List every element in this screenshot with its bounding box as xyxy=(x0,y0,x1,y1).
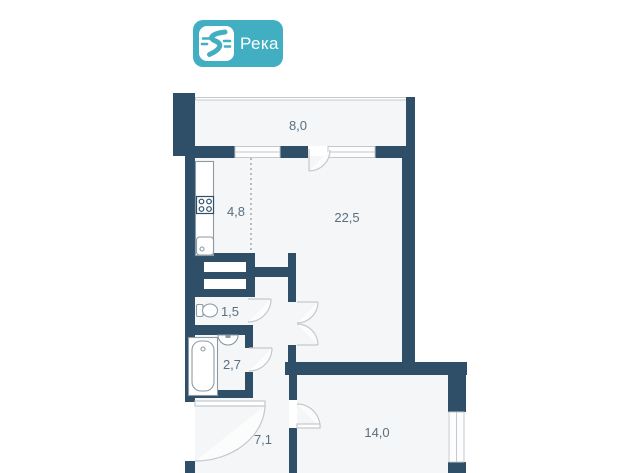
wall-segment xyxy=(288,345,296,362)
wall-segment xyxy=(245,335,253,348)
floorplan-image[interactable]: Река xyxy=(0,0,640,473)
wall-segment xyxy=(195,146,235,158)
room-label-living: 22,5 xyxy=(334,210,359,225)
living-window xyxy=(328,147,375,158)
kitchen-sink-icon xyxy=(197,237,214,255)
wall-segment xyxy=(448,462,466,473)
wall-segment xyxy=(402,146,415,362)
room-label-wc: 1,5 xyxy=(221,304,239,319)
room-label-bedroom: 14,0 xyxy=(364,425,389,440)
stove-icon xyxy=(197,197,214,214)
wall-segment xyxy=(406,97,415,146)
bathtub-icon xyxy=(189,338,218,396)
wall-segment xyxy=(448,362,466,412)
bedroom-window xyxy=(449,412,464,462)
wall-segment xyxy=(289,428,297,473)
wall-segment xyxy=(173,93,195,156)
wall-segment xyxy=(185,461,195,473)
wall-segment xyxy=(185,325,253,335)
wall-segment xyxy=(285,362,467,375)
room-label-balcony: 8,0 xyxy=(289,118,307,133)
kitchen-window xyxy=(235,147,280,158)
wall-segment xyxy=(289,375,297,400)
wall-segment xyxy=(288,253,296,302)
room-label-hallway: 7,1 xyxy=(254,432,272,447)
wall-segment xyxy=(280,146,308,158)
room-label-bathroom: 2,7 xyxy=(223,357,241,372)
wardrobe-icon xyxy=(195,253,255,297)
wall-segment xyxy=(255,267,288,277)
room-label-kitchen: 4,8 xyxy=(227,204,245,219)
balcony-glazing xyxy=(196,98,407,101)
toilet-icon xyxy=(197,304,218,317)
